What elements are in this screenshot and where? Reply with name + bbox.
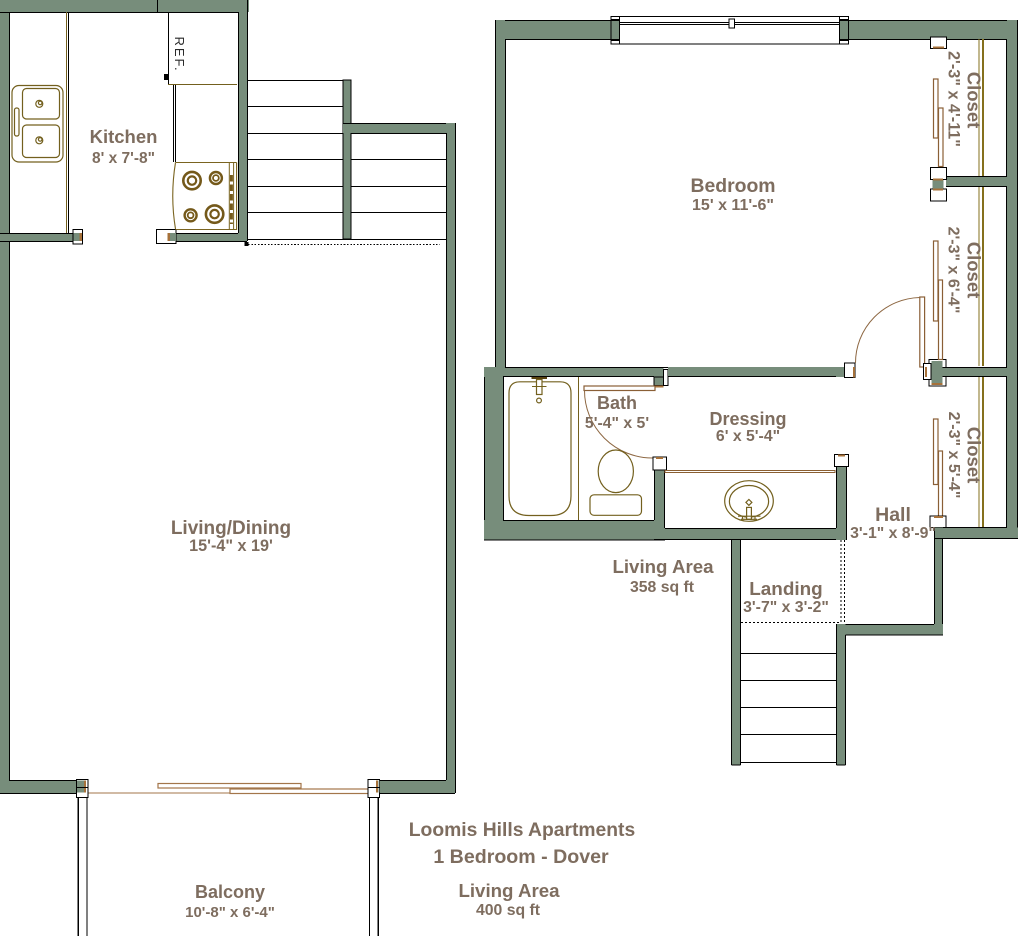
svg-text:Landing: Landing — [749, 579, 822, 600]
svg-text:Closet: Closet — [964, 72, 985, 129]
svg-text:2'-3" x 6'-4": 2'-3" x 6'-4" — [945, 227, 962, 314]
svg-text:6' x 5'-4": 6' x 5'-4" — [716, 428, 780, 445]
svg-text:3'-7" x 3'-2": 3'-7" x 3'-2" — [743, 599, 829, 616]
svg-text:Kitchen: Kitchen — [90, 126, 158, 147]
svg-text:Bath: Bath — [597, 393, 637, 413]
svg-text:Loomis Hills Apartments: Loomis Hills Apartments — [409, 820, 635, 841]
svg-text:Hall: Hall — [875, 504, 911, 526]
svg-text:Closet: Closet — [964, 427, 985, 484]
svg-text:Balcony: Balcony — [195, 882, 265, 902]
svg-text:8' x 7'-8": 8' x 7'-8" — [92, 150, 155, 167]
svg-text:2'-3" x 4'-11": 2'-3" x 4'-11" — [945, 51, 963, 147]
svg-text:2'-3" x 5'-4": 2'-3" x 5'-4" — [945, 412, 962, 499]
svg-text:1 Bedroom - Dover: 1 Bedroom - Dover — [433, 846, 609, 868]
svg-text:400 sq ft: 400 sq ft — [476, 902, 541, 919]
svg-text:10'-8" x 6'-4": 10'-8" x 6'-4" — [185, 904, 275, 921]
svg-text:REF.: REF. — [172, 37, 187, 73]
svg-text:Living/Dining: Living/Dining — [171, 518, 291, 539]
svg-text:Living Area: Living Area — [458, 880, 560, 901]
svg-text:Dressing: Dressing — [709, 409, 786, 429]
svg-text:15'-4" x 19': 15'-4" x 19' — [189, 537, 273, 555]
svg-text:5'-4" x 5': 5'-4" x 5' — [585, 415, 649, 432]
svg-text:Closet: Closet — [964, 242, 985, 299]
svg-text:358 sq ft: 358 sq ft — [630, 579, 695, 596]
svg-text:3'-1" x 8'-9": 3'-1" x 8'-9" — [850, 525, 936, 542]
svg-text:Bedroom: Bedroom — [690, 175, 775, 197]
svg-text:15' x 11'-6": 15' x 11'-6" — [692, 197, 774, 214]
svg-text:Living Area: Living Area — [612, 556, 714, 577]
